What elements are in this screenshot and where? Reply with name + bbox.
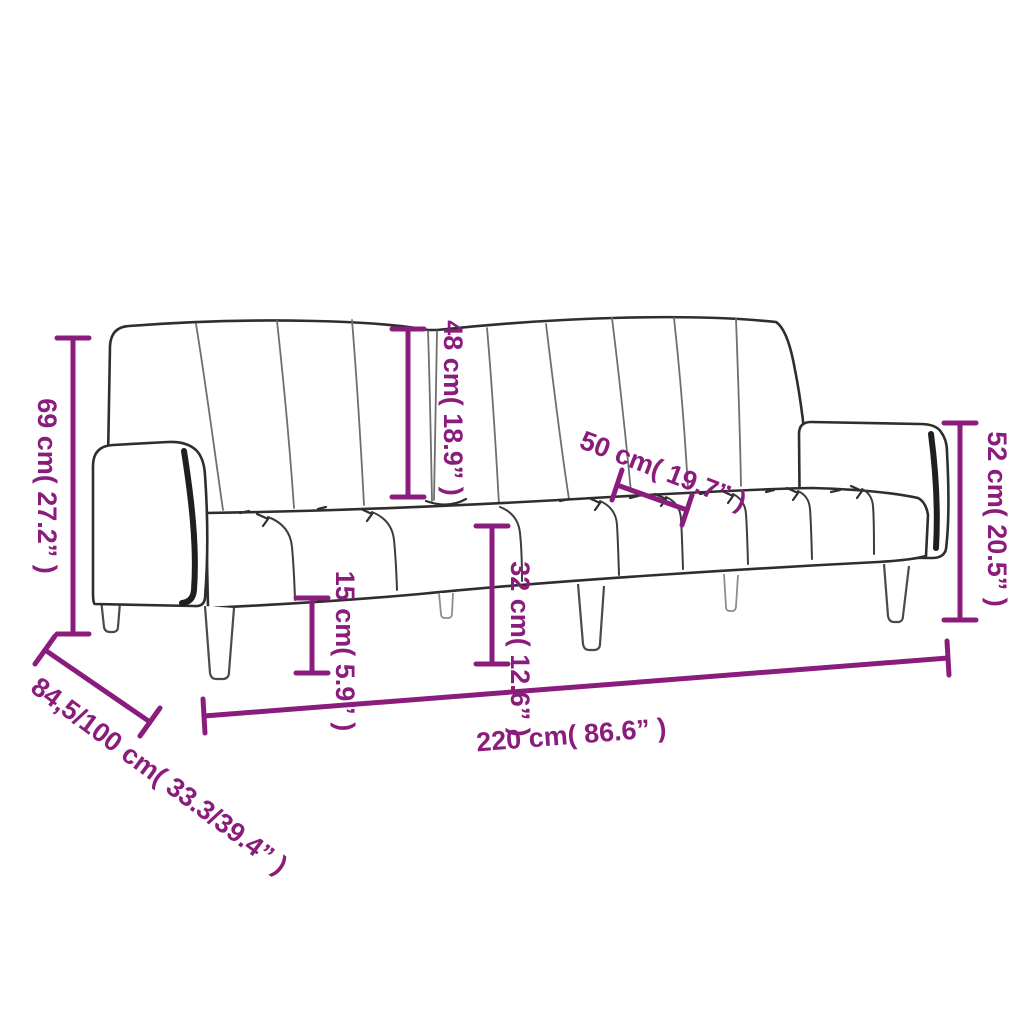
- dim-total-width-label: 220 cm( 86.6” ): [475, 713, 667, 758]
- product-dimension-diagram: 69 cm( 27.2” ) 48 cm( 18.9” ) 50 cm( 19.…: [0, 0, 1024, 1024]
- left-armrest: [93, 442, 207, 606]
- leg-back-right: [724, 574, 738, 611]
- leg-back-left: [439, 593, 453, 618]
- dim-right-height-label: 52 cm( 20.5” ): [982, 431, 1012, 607]
- sofa-dimension-drawing: 69 cm( 27.2” ) 48 cm( 18.9” ) 50 cm( 19.…: [0, 0, 1024, 1024]
- dim-total-width: 220 cm( 86.6” ): [203, 641, 949, 757]
- leg-front-right: [884, 564, 909, 622]
- dim-seat-height-label: 32 cm( 12.6” ): [505, 561, 535, 737]
- dim-total-height: 69 cm( 27.2” ): [32, 338, 89, 634]
- leg-front-mid-right: [578, 584, 604, 650]
- dim-total-depth-label: 84,5/100 cm( 33.3/39.4” ): [26, 671, 294, 880]
- dim-backrest-height-label: 48 cm( 18.9” ): [438, 320, 468, 496]
- leg-front-mid-left: [205, 606, 234, 679]
- dim-right-height: 52 cm( 20.5” ): [944, 423, 1012, 620]
- dim-total-depth: 84,5/100 cm( 33.3/39.4” ): [26, 636, 294, 880]
- dim-total-height-label: 69 cm( 27.2” ): [32, 398, 62, 574]
